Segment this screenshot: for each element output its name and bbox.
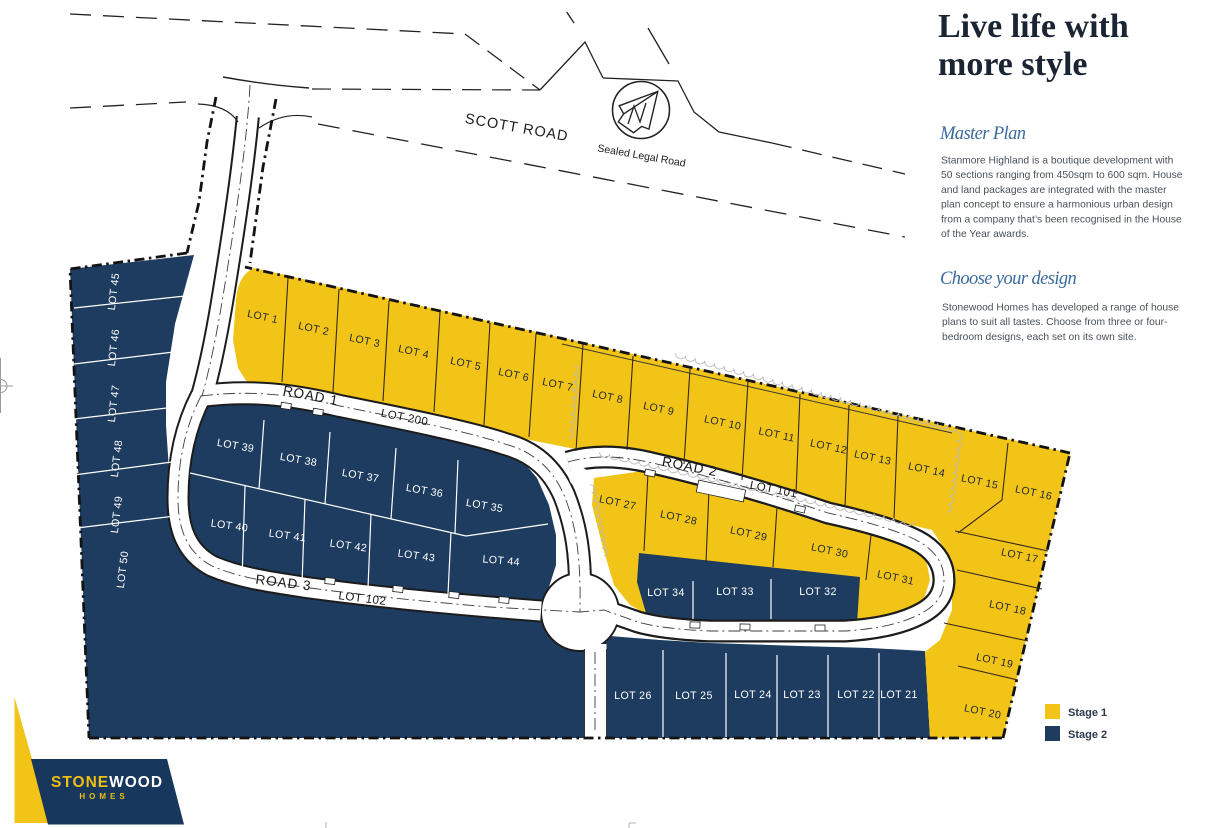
svg-text:STONEWOOD: STONEWOOD (51, 774, 163, 791)
svg-text:Stage 1: Stage 1 (1068, 707, 1107, 719)
svg-text:Choose your design: Choose your design (940, 269, 1077, 289)
svg-text:Master Plan: Master Plan (939, 124, 1026, 144)
svg-text:LOT 22: LOT 22 (837, 689, 875, 701)
svg-text:more style: more style (938, 46, 1087, 83)
svg-text:bedroom designs, each set on i: bedroom designs, each set on its own sit… (942, 332, 1137, 343)
svg-text:LOT 34: LOT 34 (647, 587, 685, 599)
svg-text:LOT 23: LOT 23 (783, 689, 821, 701)
svg-text:Sealed Legal Road: Sealed Legal Road (596, 142, 686, 169)
svg-text:LOT 21: LOT 21 (880, 689, 918, 701)
svg-text:of the Year awards.: of the Year awards. (941, 229, 1029, 240)
svg-text:plans to suit all tastes. Choo: plans to suit all tastes. Choose from th… (942, 317, 1168, 328)
svg-text:50 sections ranging from 450sq: 50 sections ranging from 450sqm to 600 s… (941, 170, 1183, 181)
svg-text:plan concept to ensure a harmo: plan concept to ensure a harmonious urba… (941, 200, 1173, 211)
svg-text:HOMES: HOMES (79, 792, 128, 801)
svg-text:Stage 2: Stage 2 (1068, 729, 1107, 741)
svg-text:Live life with: Live life with (938, 8, 1129, 45)
svg-text:Stonewood Homes has developed: Stonewood Homes has developed a range of… (942, 303, 1179, 314)
svg-text:SCOTT ROAD: SCOTT ROAD (464, 111, 570, 145)
svg-text:LOT 26: LOT 26 (614, 690, 652, 702)
svg-text:and land packages are integrat: and land packages are integrated with th… (941, 185, 1167, 196)
svg-text:LOT 25: LOT 25 (675, 690, 713, 702)
svg-text:from a company that’s been rec: from a company that’s been recognised in… (941, 214, 1182, 225)
svg-text:LOT 24: LOT 24 (734, 689, 772, 701)
svg-text:LOT 32: LOT 32 (799, 586, 837, 598)
svg-text:LOT 33: LOT 33 (716, 586, 754, 598)
svg-text:Stanmore Highland is a boutiqu: Stanmore Highland is a boutique developm… (941, 156, 1174, 167)
